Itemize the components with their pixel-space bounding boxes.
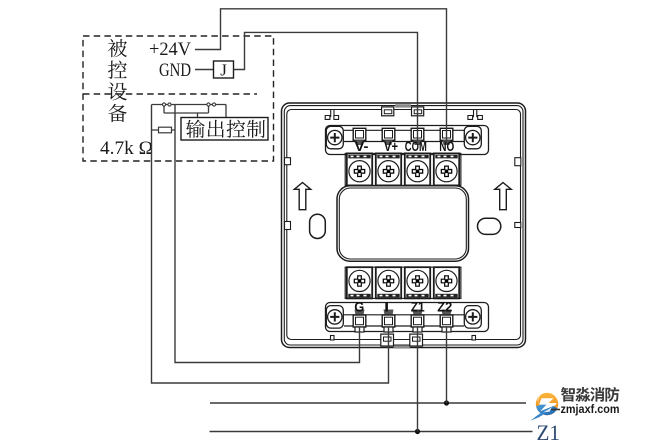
svg-text:Z1: Z1 xyxy=(537,420,561,444)
svg-text:G: G xyxy=(354,298,364,314)
svg-text:COM: COM xyxy=(405,138,427,154)
svg-text:V+: V+ xyxy=(384,138,398,154)
svg-text:V-: V- xyxy=(355,138,369,154)
svg-text:+24V: +24V xyxy=(149,39,191,60)
svg-text:GND: GND xyxy=(159,60,191,81)
svg-text:Z2: Z2 xyxy=(437,298,452,314)
svg-text:I: I xyxy=(384,298,389,314)
svg-text:4.7k Ω: 4.7k Ω xyxy=(100,138,153,159)
svg-text:J: J xyxy=(220,61,227,80)
svg-text:Z1: Z1 xyxy=(411,298,425,314)
svg-text:zmjaxf.com: zmjaxf.com xyxy=(561,404,620,416)
